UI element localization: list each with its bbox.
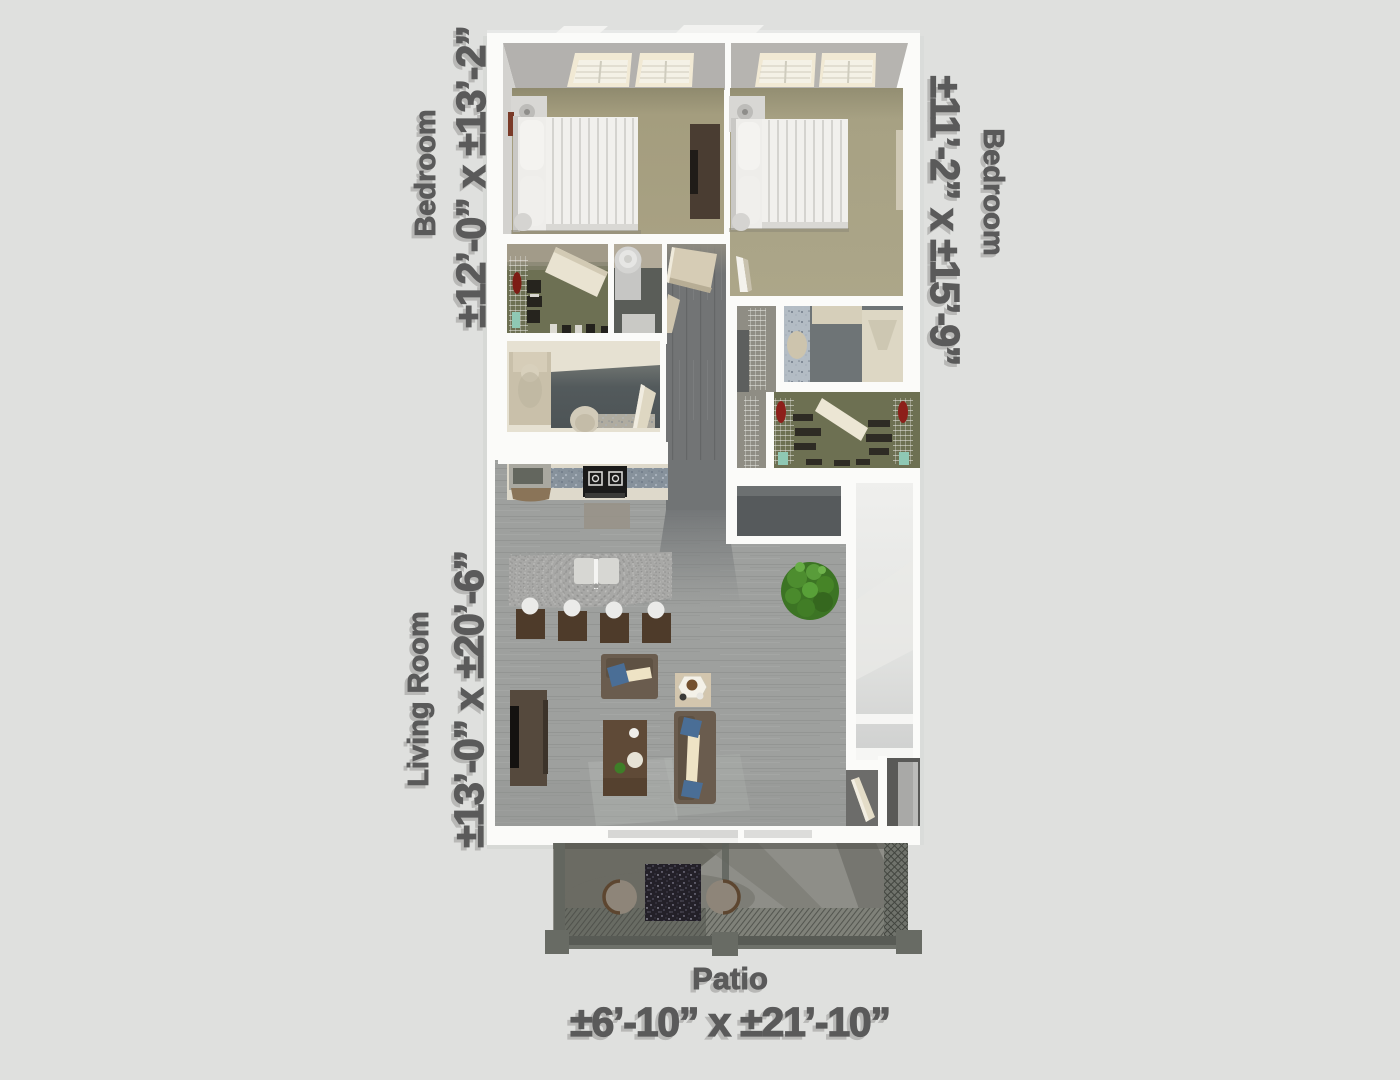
svg-text:Bedroom: Bedroom (977, 128, 1009, 255)
svg-text:Bedroom: Bedroom (410, 109, 442, 236)
svg-text:±12’-0” x ±13’-2”: ±12’-0” x ±13’-2” (448, 26, 494, 328)
svg-text:±11’-2” x ±15’-9”: ±11’-2” x ±15’-9” (922, 75, 968, 364)
svg-text:Living Room: Living Room (403, 611, 435, 787)
svg-text:±13’-0” x ±20’-6”: ±13’-0” x ±20’-6” (446, 551, 492, 847)
svg-text:Patio: Patio (692, 961, 768, 996)
svg-text:±6’-10” x ±21’-10”: ±6’-10” x ±21’-10” (570, 999, 890, 1045)
